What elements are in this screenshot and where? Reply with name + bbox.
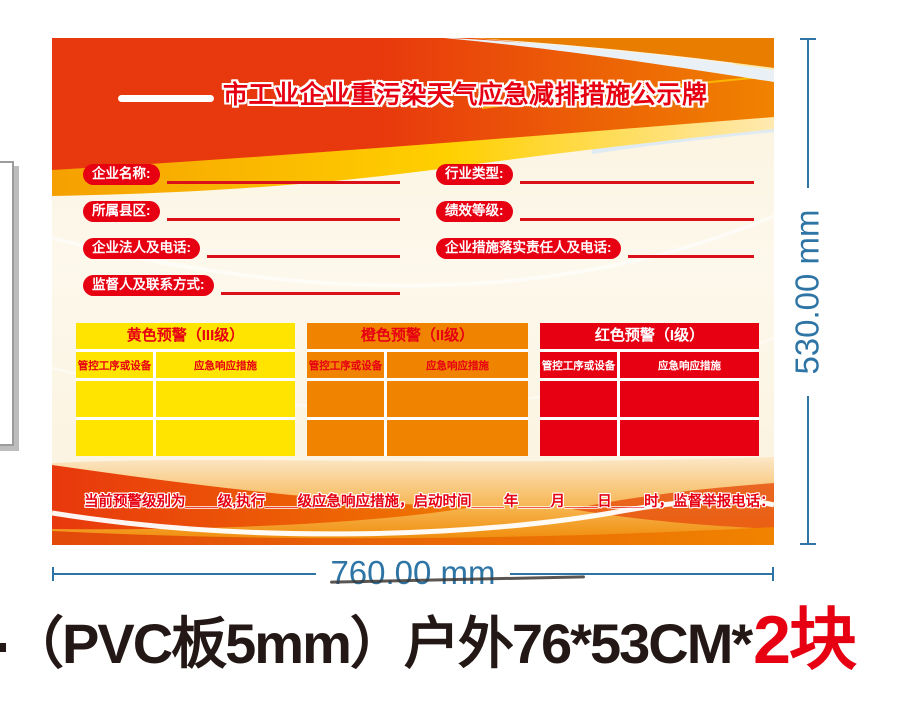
fields-right-column: 行业类型: 绩效等级: 企业措施落实责任人及电话: bbox=[436, 164, 754, 275]
height-dimension-labelwrap: 530.00 mm bbox=[786, 188, 830, 396]
field-blank-line bbox=[520, 218, 755, 221]
table-empty-cell bbox=[620, 381, 759, 417]
spec-caption-text: （PVC板5mm）户外76*53CM* bbox=[8, 599, 751, 680]
dimension-tick bbox=[800, 543, 816, 545]
table-col-header: 管控工序或设备 bbox=[76, 352, 153, 378]
table-empty-cell bbox=[620, 420, 759, 456]
dimension-line bbox=[54, 573, 316, 575]
table-empty-cell bbox=[156, 420, 295, 456]
height-dimension: 530.00 mm bbox=[786, 38, 830, 545]
field-row-industry-type: 行业类型: bbox=[436, 164, 754, 185]
table-empty-cell bbox=[387, 381, 528, 417]
field-row-supervisor: 监督人及联系方式: bbox=[83, 275, 400, 296]
dimension-line bbox=[807, 40, 809, 188]
dimension-line bbox=[510, 573, 772, 575]
poster-board: 市工业企业重污染天气应急减排措施公示牌 企业名称: 所属县区: 企业法人及电话:… bbox=[52, 38, 774, 545]
field-row-company-name: 企业名称: bbox=[83, 164, 400, 185]
table-empty-cell bbox=[540, 420, 617, 456]
field-label-pill: 企业名称: bbox=[83, 164, 160, 185]
height-dimension-label: 530.00 mm bbox=[789, 209, 827, 374]
field-blank-line bbox=[520, 181, 755, 184]
table-col-header: 应急响应措施 bbox=[620, 352, 759, 378]
field-label-pill: 所属县区: bbox=[83, 201, 160, 222]
field-blank-line bbox=[628, 255, 755, 258]
table-col-header: 管控工序或设备 bbox=[540, 352, 617, 378]
dimension-line bbox=[807, 396, 809, 544]
field-blank-line bbox=[221, 292, 401, 295]
field-row-performance-grade: 绩效等级: bbox=[436, 201, 754, 222]
table-empty-cell bbox=[76, 381, 153, 417]
field-row-responsible-person: 企业措施落实责任人及电话: bbox=[436, 238, 754, 259]
field-blank-line bbox=[167, 181, 401, 184]
table-empty-cell bbox=[540, 381, 617, 417]
field-row-legal-person: 企业法人及电话: bbox=[83, 238, 400, 259]
table-empty-cell bbox=[156, 381, 295, 417]
table-title: 橙色预警（II级） bbox=[307, 323, 528, 352]
field-label-pill: 企业措施落实责任人及电话: bbox=[436, 238, 621, 259]
field-blank-line bbox=[167, 218, 401, 221]
clipped-text-fragment bbox=[0, 643, 6, 652]
table-empty-cell bbox=[76, 420, 153, 456]
title-blank-line bbox=[118, 95, 214, 102]
table-col-header: 应急响应措施 bbox=[156, 352, 295, 378]
spec-caption: （PVC板5mm）户外76*53CM* 2块 bbox=[8, 584, 855, 683]
field-label-pill: 行业类型: bbox=[436, 164, 513, 185]
table-empty-cell bbox=[307, 420, 384, 456]
field-label-pill: 企业法人及电话: bbox=[83, 238, 200, 259]
yellow-warning-table: 黄色预警（III级） 管控工序或设备 应急响应措施 bbox=[76, 323, 295, 456]
red-warning-table: 红色预警（I级） 管控工序或设备 应急响应措施 bbox=[540, 323, 759, 456]
poster-title-row: 市工业企业重污染天气应急减排措施公示牌 bbox=[118, 78, 708, 108]
table-title: 红色预警（I级） bbox=[540, 323, 759, 352]
table-title: 黄色预警（III级） bbox=[76, 323, 295, 352]
fields-left-column: 企业名称: 所属县区: 企业法人及电话: 监督人及联系方式: bbox=[83, 164, 400, 312]
field-label-pill: 绩效等级: bbox=[436, 201, 513, 222]
field-row-county: 所属县区: bbox=[83, 201, 400, 222]
table-col-header: 应急响应措施 bbox=[387, 352, 528, 378]
current-warning-status-line: 当前预警级别为____级,执行____级应急响应措施，启动时间____年____… bbox=[84, 490, 774, 511]
field-blank-line bbox=[207, 255, 400, 258]
table-empty-cell bbox=[307, 381, 384, 417]
design-proof-canvas: 市工业企业重污染天气应急减排措施公示牌 企业名称: 所属县区: 企业法人及电话:… bbox=[0, 0, 912, 716]
spec-caption-quantity: 2块 bbox=[753, 584, 855, 683]
field-label-pill: 监督人及联系方式: bbox=[83, 275, 214, 296]
table-empty-cell bbox=[387, 420, 528, 456]
orange-warning-table: 橙色预警（II级） 管控工序或设备 应急响应措施 bbox=[307, 323, 528, 456]
dimension-tick bbox=[772, 567, 774, 581]
table-col-header: 管控工序或设备 bbox=[307, 352, 384, 378]
adjacent-page-edge bbox=[0, 161, 14, 446]
poster-title: 市工业企业重污染天气应急减排措施公示牌 bbox=[223, 75, 708, 111]
warning-tables: 黄色预警（III级） 管控工序或设备 应急响应措施 橙色预警（II级） 管控工序… bbox=[76, 323, 759, 456]
